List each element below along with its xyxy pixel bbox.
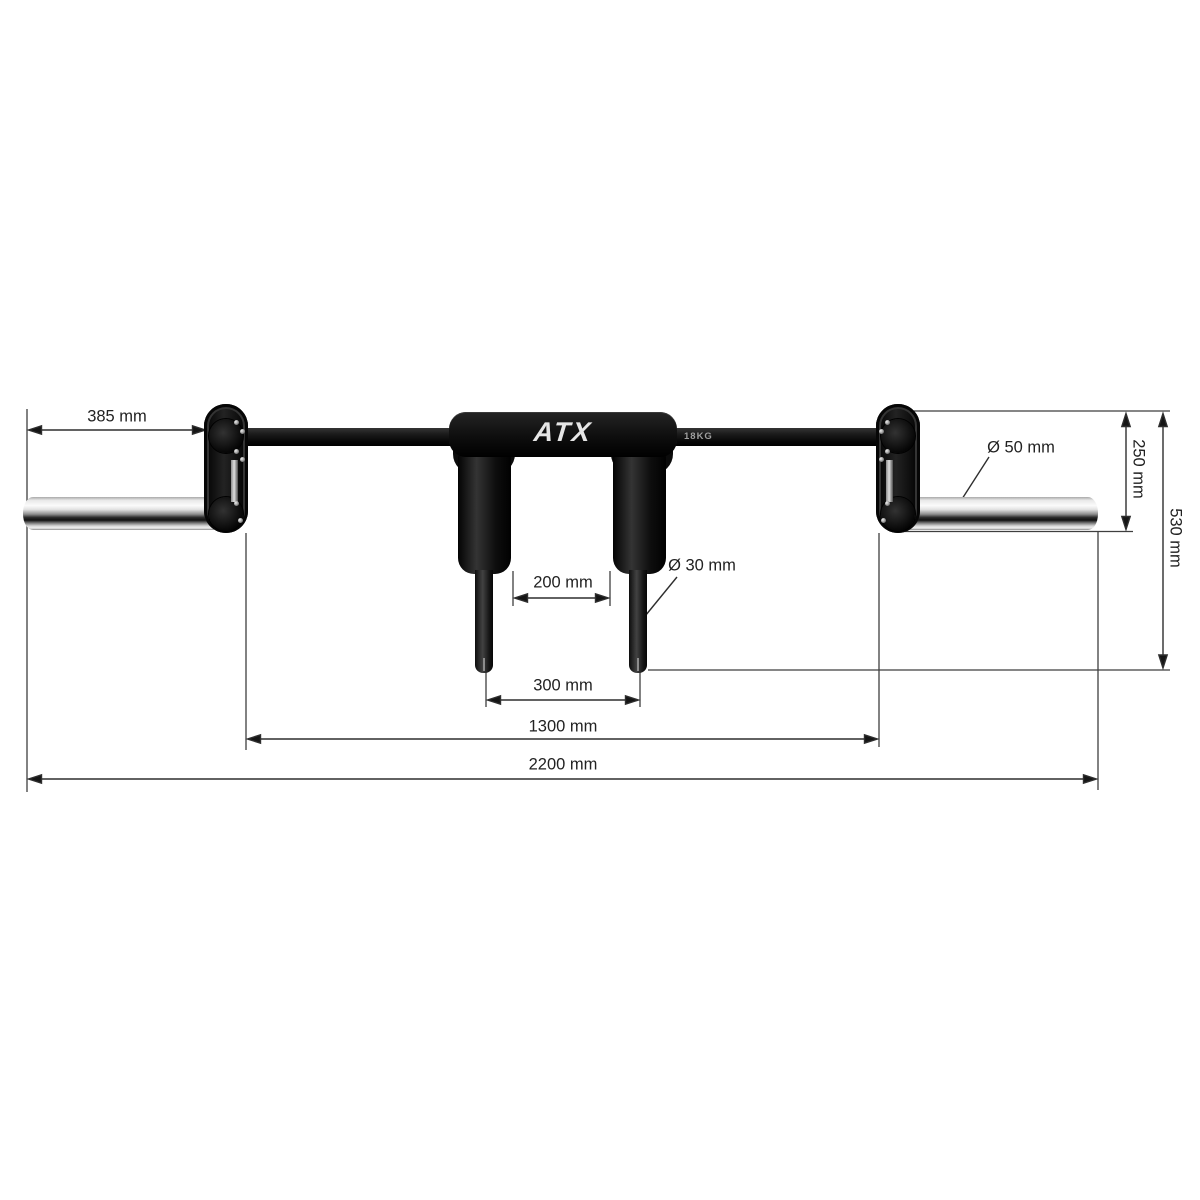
dim-label-sleeve-diameter: Ø 50 mm (987, 439, 1055, 458)
dimension-linework (0, 0, 1200, 1200)
arrowhead-left (515, 594, 528, 602)
bolt-icon (885, 420, 890, 425)
diagram-canvas: 18KG ATX 385 mm 200 mm 300 mm 1300 mm 22… (0, 0, 1200, 1200)
bolt-icon (240, 429, 245, 434)
bracket-axle (231, 460, 238, 502)
bolt-icon (238, 518, 243, 523)
dim-label-total-drop: 530 mm (1166, 508, 1185, 568)
bolt-icon (234, 449, 239, 454)
right-peg (629, 570, 647, 673)
bolt-icon (879, 429, 884, 434)
bolt-icon (885, 449, 890, 454)
arrowhead-up (1122, 414, 1130, 427)
left-handle (458, 450, 511, 574)
bolt-icon (240, 457, 245, 462)
dim-label-sleeve-drop: 250 mm (1129, 439, 1148, 499)
dim-grip-spacing-200 (515, 594, 609, 602)
arrowhead-left (29, 426, 42, 434)
bar-shaft-right: 18KG (670, 428, 882, 446)
dim-label-peg-spacing: 300 mm (533, 677, 593, 696)
center-pad: ATX (449, 412, 677, 457)
bolt-icon (234, 420, 239, 425)
bolt-icon (885, 501, 890, 506)
right-end-bracket (876, 404, 920, 533)
right-handle (613, 450, 666, 574)
dim-sleeve-length-385 (29, 426, 206, 434)
bolt-icon (881, 518, 886, 523)
bracket-axle (886, 460, 893, 502)
dim-label-inner-length: 1300 mm (529, 718, 598, 737)
dim-peg-spacing-300 (488, 696, 639, 704)
arrowhead-right (865, 735, 878, 743)
arrowhead-down (1122, 517, 1130, 530)
dim-label-grip-spacing: 200 mm (533, 574, 593, 593)
leader-sleeve-diameter (962, 457, 989, 499)
left-chrome-sleeve (23, 497, 215, 530)
dim-label-peg-diameter: Ø 30 mm (668, 557, 736, 576)
arrowhead-left (248, 735, 261, 743)
brand-logo: ATX (447, 417, 678, 448)
right-chrome-sleeve (908, 497, 1098, 530)
arrowhead-left (488, 696, 501, 704)
left-peg (475, 570, 493, 673)
dimension-arrows (29, 414, 1168, 784)
left-end-bracket (204, 404, 248, 533)
weight-marking: 18KG (684, 431, 713, 442)
bar-shaft-left (242, 428, 460, 446)
arrowhead-right (1084, 775, 1097, 783)
arrowhead-left (29, 775, 42, 783)
arrowhead-right (626, 696, 639, 704)
arrowhead-down (1159, 655, 1167, 668)
dim-label-sleeve-length: 385 mm (87, 408, 147, 427)
bolt-icon (234, 501, 239, 506)
dim-total-length-2200 (29, 775, 1097, 783)
arrowhead-right (596, 594, 609, 602)
arrowhead-up (1159, 414, 1167, 427)
bolt-icon (879, 457, 884, 462)
dim-label-total-length: 2200 mm (529, 756, 598, 775)
